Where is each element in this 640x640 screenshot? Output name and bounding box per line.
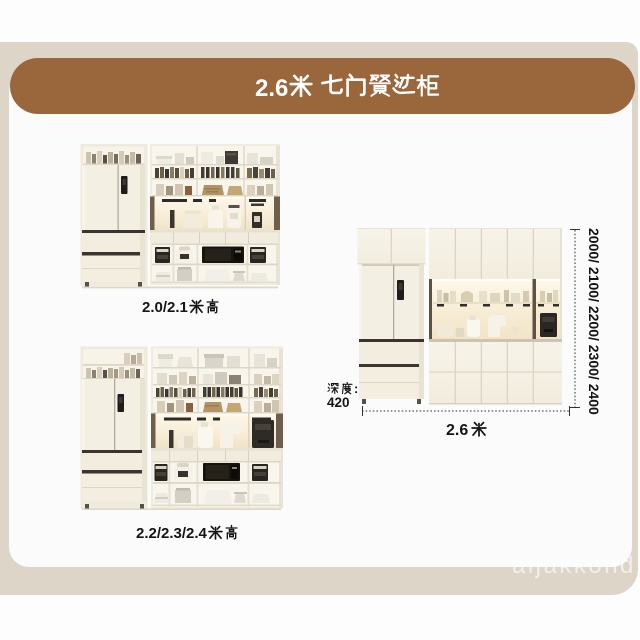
svg-text:2.6: 2.6 (446, 422, 468, 439)
svg-text:2.6: 2.6 (255, 75, 288, 102)
svg-text:2.2/2.3/2.4: 2.2/2.3/2.4 (136, 525, 208, 542)
svg-text:2.0/2.1: 2.0/2.1 (142, 299, 188, 316)
svg-text::: : (354, 381, 358, 396)
svg-text:420: 420 (327, 395, 350, 409)
